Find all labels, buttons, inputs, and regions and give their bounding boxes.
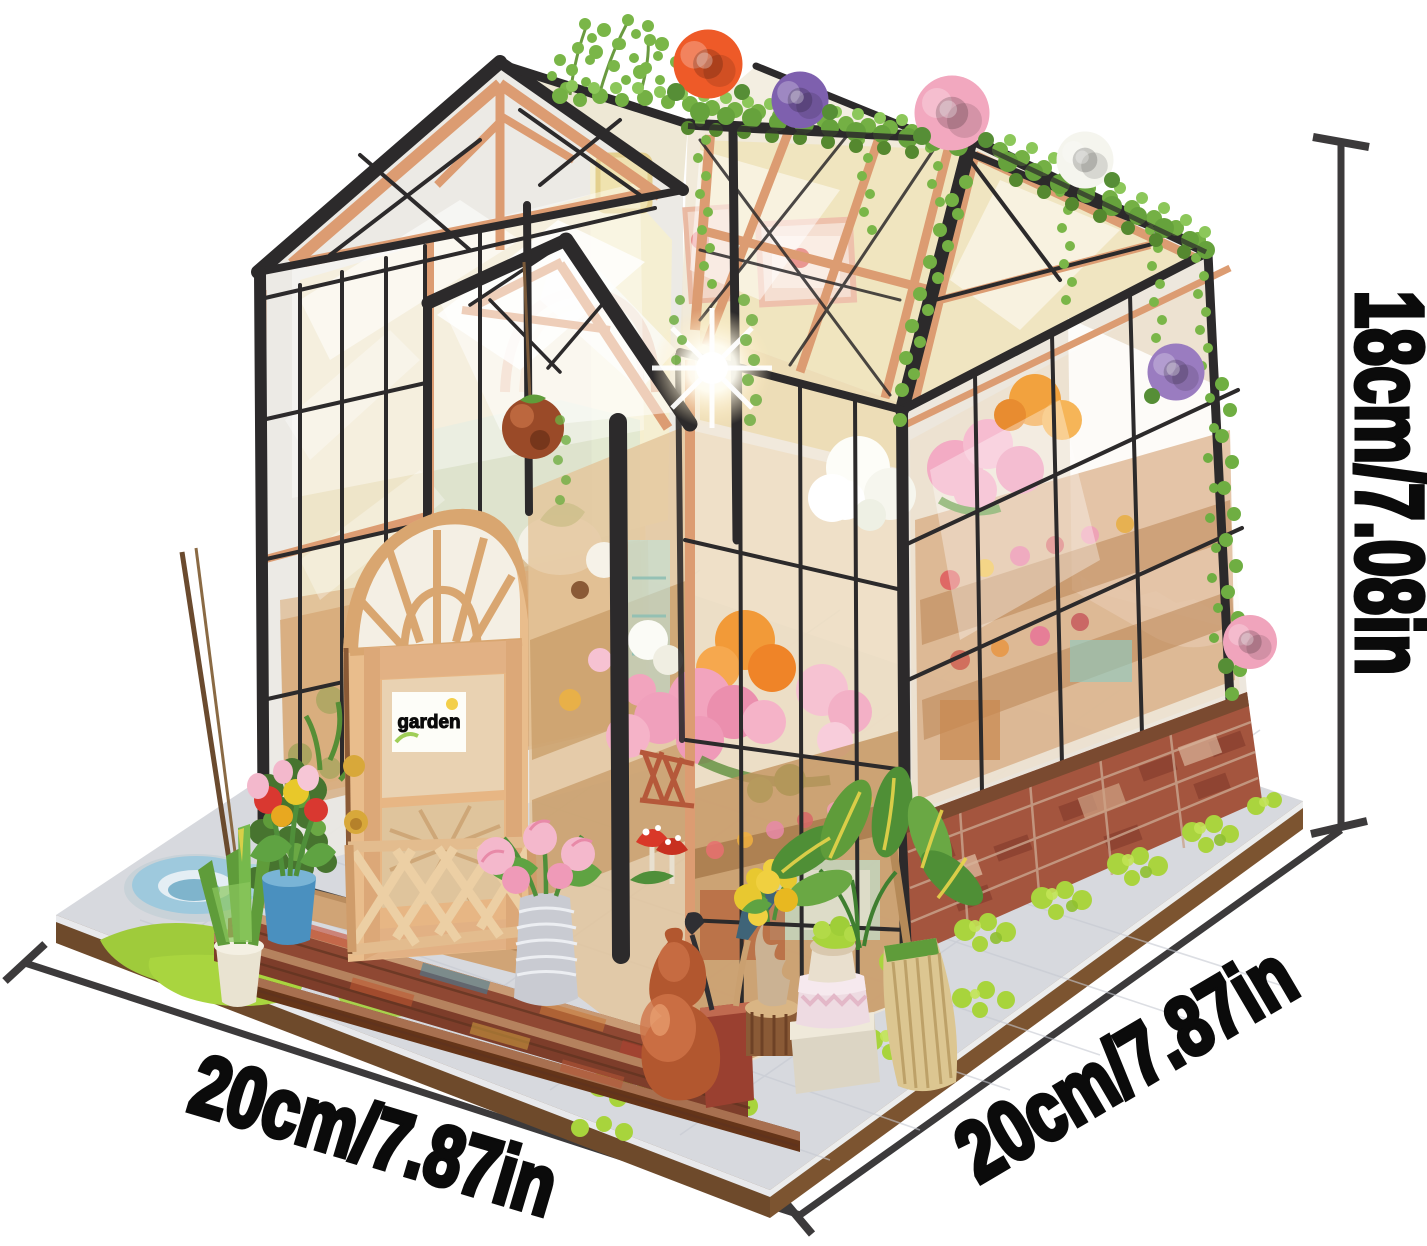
svg-text:18cm/7.08in: 18cm/7.08in (1336, 291, 1427, 676)
svg-text:garden: garden (397, 712, 460, 733)
